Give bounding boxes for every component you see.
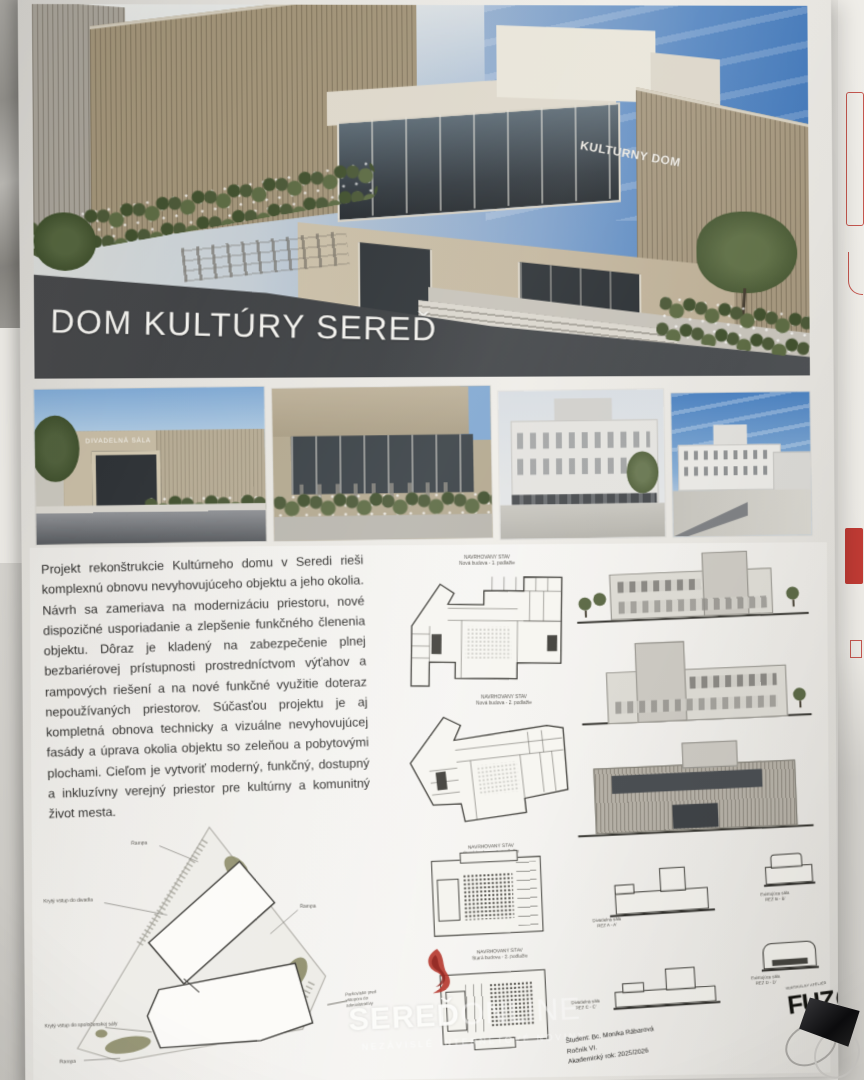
plan2-stair-core	[436, 771, 448, 790]
elevation-2-trunk-right	[799, 701, 801, 708]
thumb2-floor	[274, 514, 492, 541]
thumb4-window-row-1	[684, 450, 773, 460]
neighbor-red-mark	[850, 640, 862, 658]
thumbnail-theatre-hall: DIVADELNÁ SÁLA	[34, 387, 266, 545]
site-plan: Rampa Krytý vstup do divadla Rampa Krytý…	[38, 813, 346, 1073]
thumb4-right-wing	[773, 451, 812, 493]
thumb3-tree	[626, 451, 658, 493]
thumb1-road	[36, 503, 267, 545]
plan2-hall-seats	[477, 761, 520, 795]
thumb3-window-row-1	[517, 431, 650, 449]
watermark-brand-strong: SEREĎ	[348, 997, 461, 1038]
hero-glass-mullions	[337, 103, 617, 219]
neighbor-red-blob	[845, 528, 863, 584]
hero-tree-left	[33, 212, 96, 270]
section-a-tower	[659, 866, 686, 892]
elevation-3	[574, 735, 813, 837]
section-c-tower	[665, 967, 696, 991]
site-label-ramp-right: Rampa	[300, 903, 316, 909]
section-b-roof	[770, 853, 802, 869]
neighbor-poster-right	[838, 0, 864, 1080]
plan1-hall-seats	[465, 626, 511, 658]
site-label-ramp-top: Rampa	[131, 840, 148, 846]
section-b	[762, 849, 815, 887]
thumbnail-terrace	[272, 386, 493, 541]
poster: KULTURNY DOM DOM KULTÚRY SEREĎ DIVADELNÁ…	[18, 0, 839, 1080]
neighbor-red-sketch-rect	[846, 92, 864, 226]
neighbor-red-sketch-curve	[848, 252, 863, 295]
elevation-1	[574, 546, 808, 624]
plan3-top-wing	[460, 850, 518, 864]
elevation-3-flytower	[682, 740, 738, 768]
section-c-annex	[622, 982, 644, 993]
thumbnail-complex-view	[671, 392, 812, 537]
elevation-3-entrance	[672, 803, 718, 829]
section-d	[760, 929, 819, 972]
elevation-1-tree-left-2	[593, 593, 606, 607]
floor-plan-new-1	[395, 564, 568, 699]
floor-plan-old-1	[431, 856, 544, 937]
elevation-1-trunk-right	[792, 599, 794, 606]
thumb1-theatre-sign: DIVADELNÁ SÁLA	[85, 436, 174, 444]
section-a-annex	[614, 884, 634, 895]
hero-rendering: KULTURNY DOM DOM KULTÚRY SEREĎ	[32, 4, 810, 379]
plan3-side-rooms	[516, 861, 539, 926]
poster-title: DOM KULTÚRY SEREĎ	[50, 302, 438, 348]
plan3-stage	[437, 879, 461, 922]
plan3-auditorium-seats	[462, 872, 514, 920]
thumb2-canopy	[272, 386, 469, 437]
hero-tree-right-canopy	[696, 212, 797, 294]
section-c	[611, 963, 720, 1010]
floor-plan-new-2	[401, 702, 577, 838]
elevation-1-tree-left-1	[578, 597, 591, 611]
thumb3-ground	[500, 503, 665, 539]
project-description: Projekt rekonštrukcie Kultúrneho domu v …	[41, 550, 371, 825]
section-a	[607, 865, 715, 918]
elevation-2-tree-right	[793, 688, 806, 701]
binder-clip	[786, 996, 864, 1080]
section-d-interior-band	[772, 958, 808, 966]
photo-frame: KULTURNY DOM DOM KULTÚRY SEREĎ DIVADELNÁ…	[0, 0, 864, 1080]
elevation-1-trunk-left	[585, 610, 587, 617]
hero-fly-tower	[496, 25, 656, 103]
plan1-stair-core	[431, 634, 441, 654]
elevation-2	[579, 632, 812, 726]
plan1-stair-core-2	[547, 635, 557, 651]
elevation-1-tree-right	[786, 586, 799, 599]
site-label-ramp-bottom: Rampa	[60, 1059, 77, 1066]
thumb4-window-row-2	[684, 466, 773, 476]
section-d-body	[762, 940, 817, 969]
sered-online-logo-icon	[415, 946, 457, 1000]
thumbnail-existing-front	[498, 389, 665, 539]
site-label-entry-theatre: Krytý vstup do divadla	[43, 897, 93, 905]
watermark-brand-light: ONLINE	[459, 991, 581, 1032]
